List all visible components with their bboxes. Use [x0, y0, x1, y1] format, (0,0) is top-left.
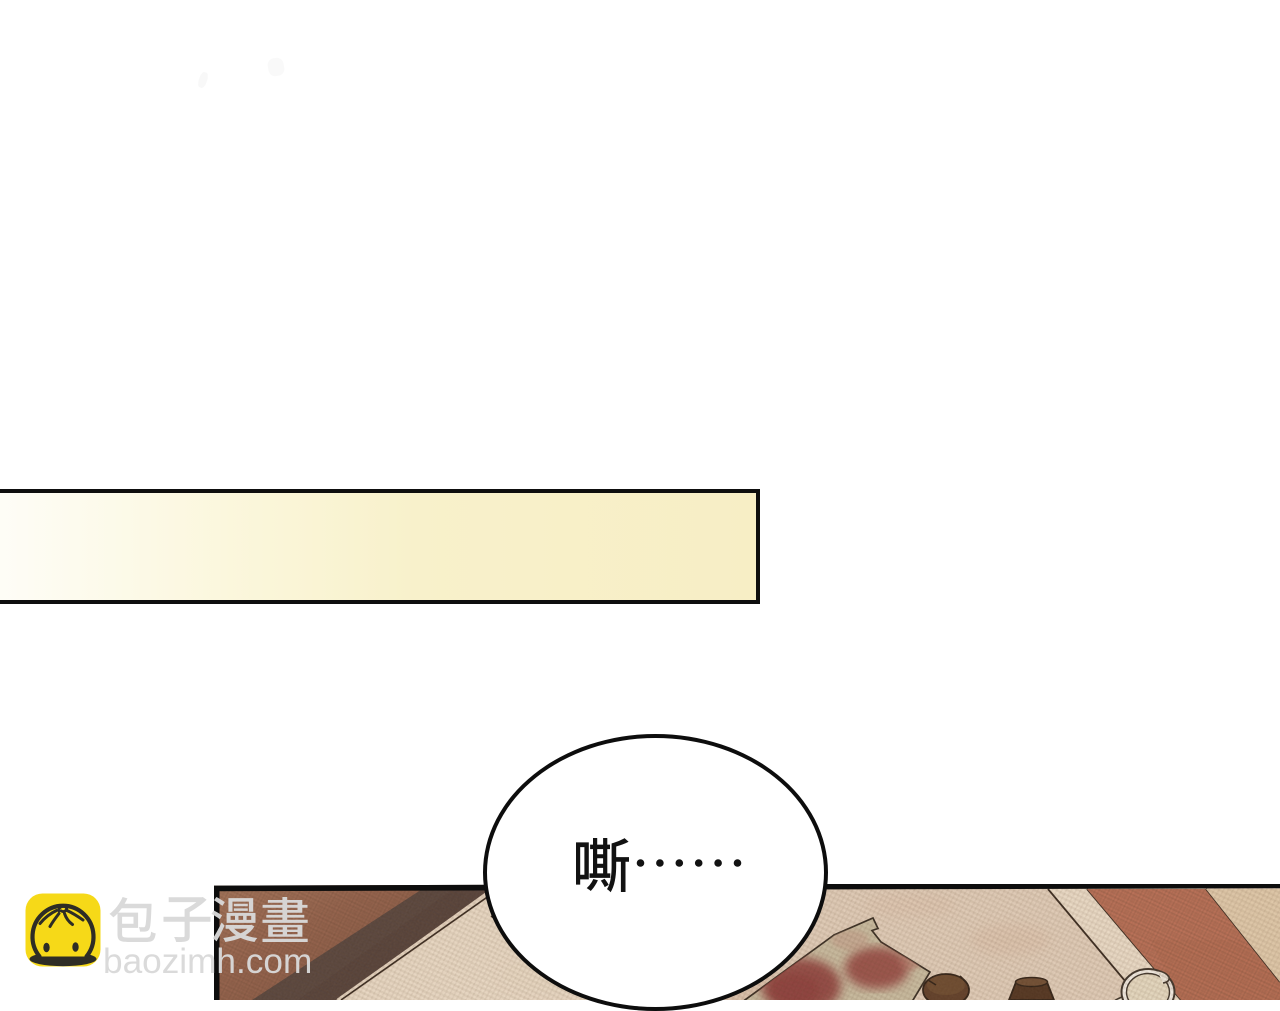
svg-text:baozimh.com: baozimh.com — [103, 942, 312, 981]
